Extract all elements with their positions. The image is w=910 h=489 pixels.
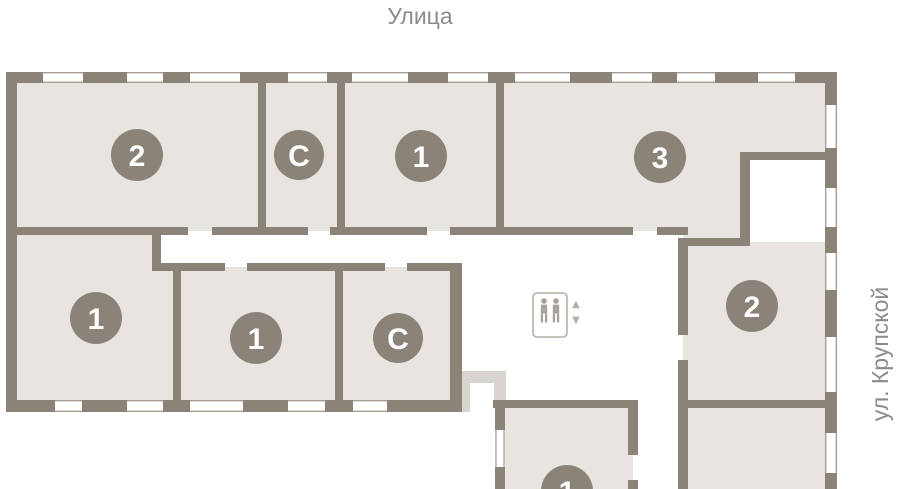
room-apt-2-right-lower[interactable] xyxy=(683,404,831,489)
wall-apt1mid-studio xyxy=(335,263,343,412)
floor-plan: 2 С 1 3 1 1 С 2 xyxy=(0,0,910,489)
wall-studio-apt1 xyxy=(337,83,345,235)
svg-text:2: 2 xyxy=(744,291,761,324)
svg-text:1: 1 xyxy=(248,323,265,356)
street-label-top: Улица xyxy=(387,3,453,29)
badge-apt-1-top[interactable]: 1 xyxy=(395,130,447,182)
svg-text:1: 1 xyxy=(88,303,105,336)
svg-text:С: С xyxy=(387,323,409,356)
svg-text:1: 1 xyxy=(413,141,430,174)
svg-text:2: 2 xyxy=(129,140,146,173)
street-label-right: ул. Крупской xyxy=(867,287,893,422)
badge-apt-1-bottom-mid[interactable]: 1 xyxy=(230,312,282,364)
wall-apt1-apt3 xyxy=(496,83,504,235)
elevator-person-icon xyxy=(553,298,559,322)
wall-studio-right xyxy=(450,263,462,412)
elevator-icon: ▲ ▼ xyxy=(533,293,580,337)
badge-apt-2-right[interactable]: 2 xyxy=(726,280,778,332)
badge-studio-top[interactable]: С xyxy=(274,130,324,180)
badge-apt-2-top-left[interactable]: 2 xyxy=(111,129,163,181)
wall-apt2-studio xyxy=(258,83,266,235)
svg-text:1: 1 xyxy=(559,476,576,489)
elevator-up-arrow-icon: ▲ xyxy=(572,299,580,310)
wall-left-exterior xyxy=(6,72,17,412)
floor-plan-page: 2 С 1 3 1 1 С 2 xyxy=(0,0,910,489)
badge-apt-3-top-right[interactable]: 3 xyxy=(634,131,686,183)
elevator-down-arrow-icon: ▼ xyxy=(572,315,580,326)
svg-text:3: 3 xyxy=(652,142,669,175)
wall-apt1bl-apt1mid xyxy=(173,267,181,412)
svg-text:С: С xyxy=(288,140,310,173)
badge-studio-bottom[interactable]: С xyxy=(373,313,423,363)
badge-apt-1-bottom-left[interactable]: 1 xyxy=(70,292,122,344)
elevator-person-icon xyxy=(541,298,547,322)
